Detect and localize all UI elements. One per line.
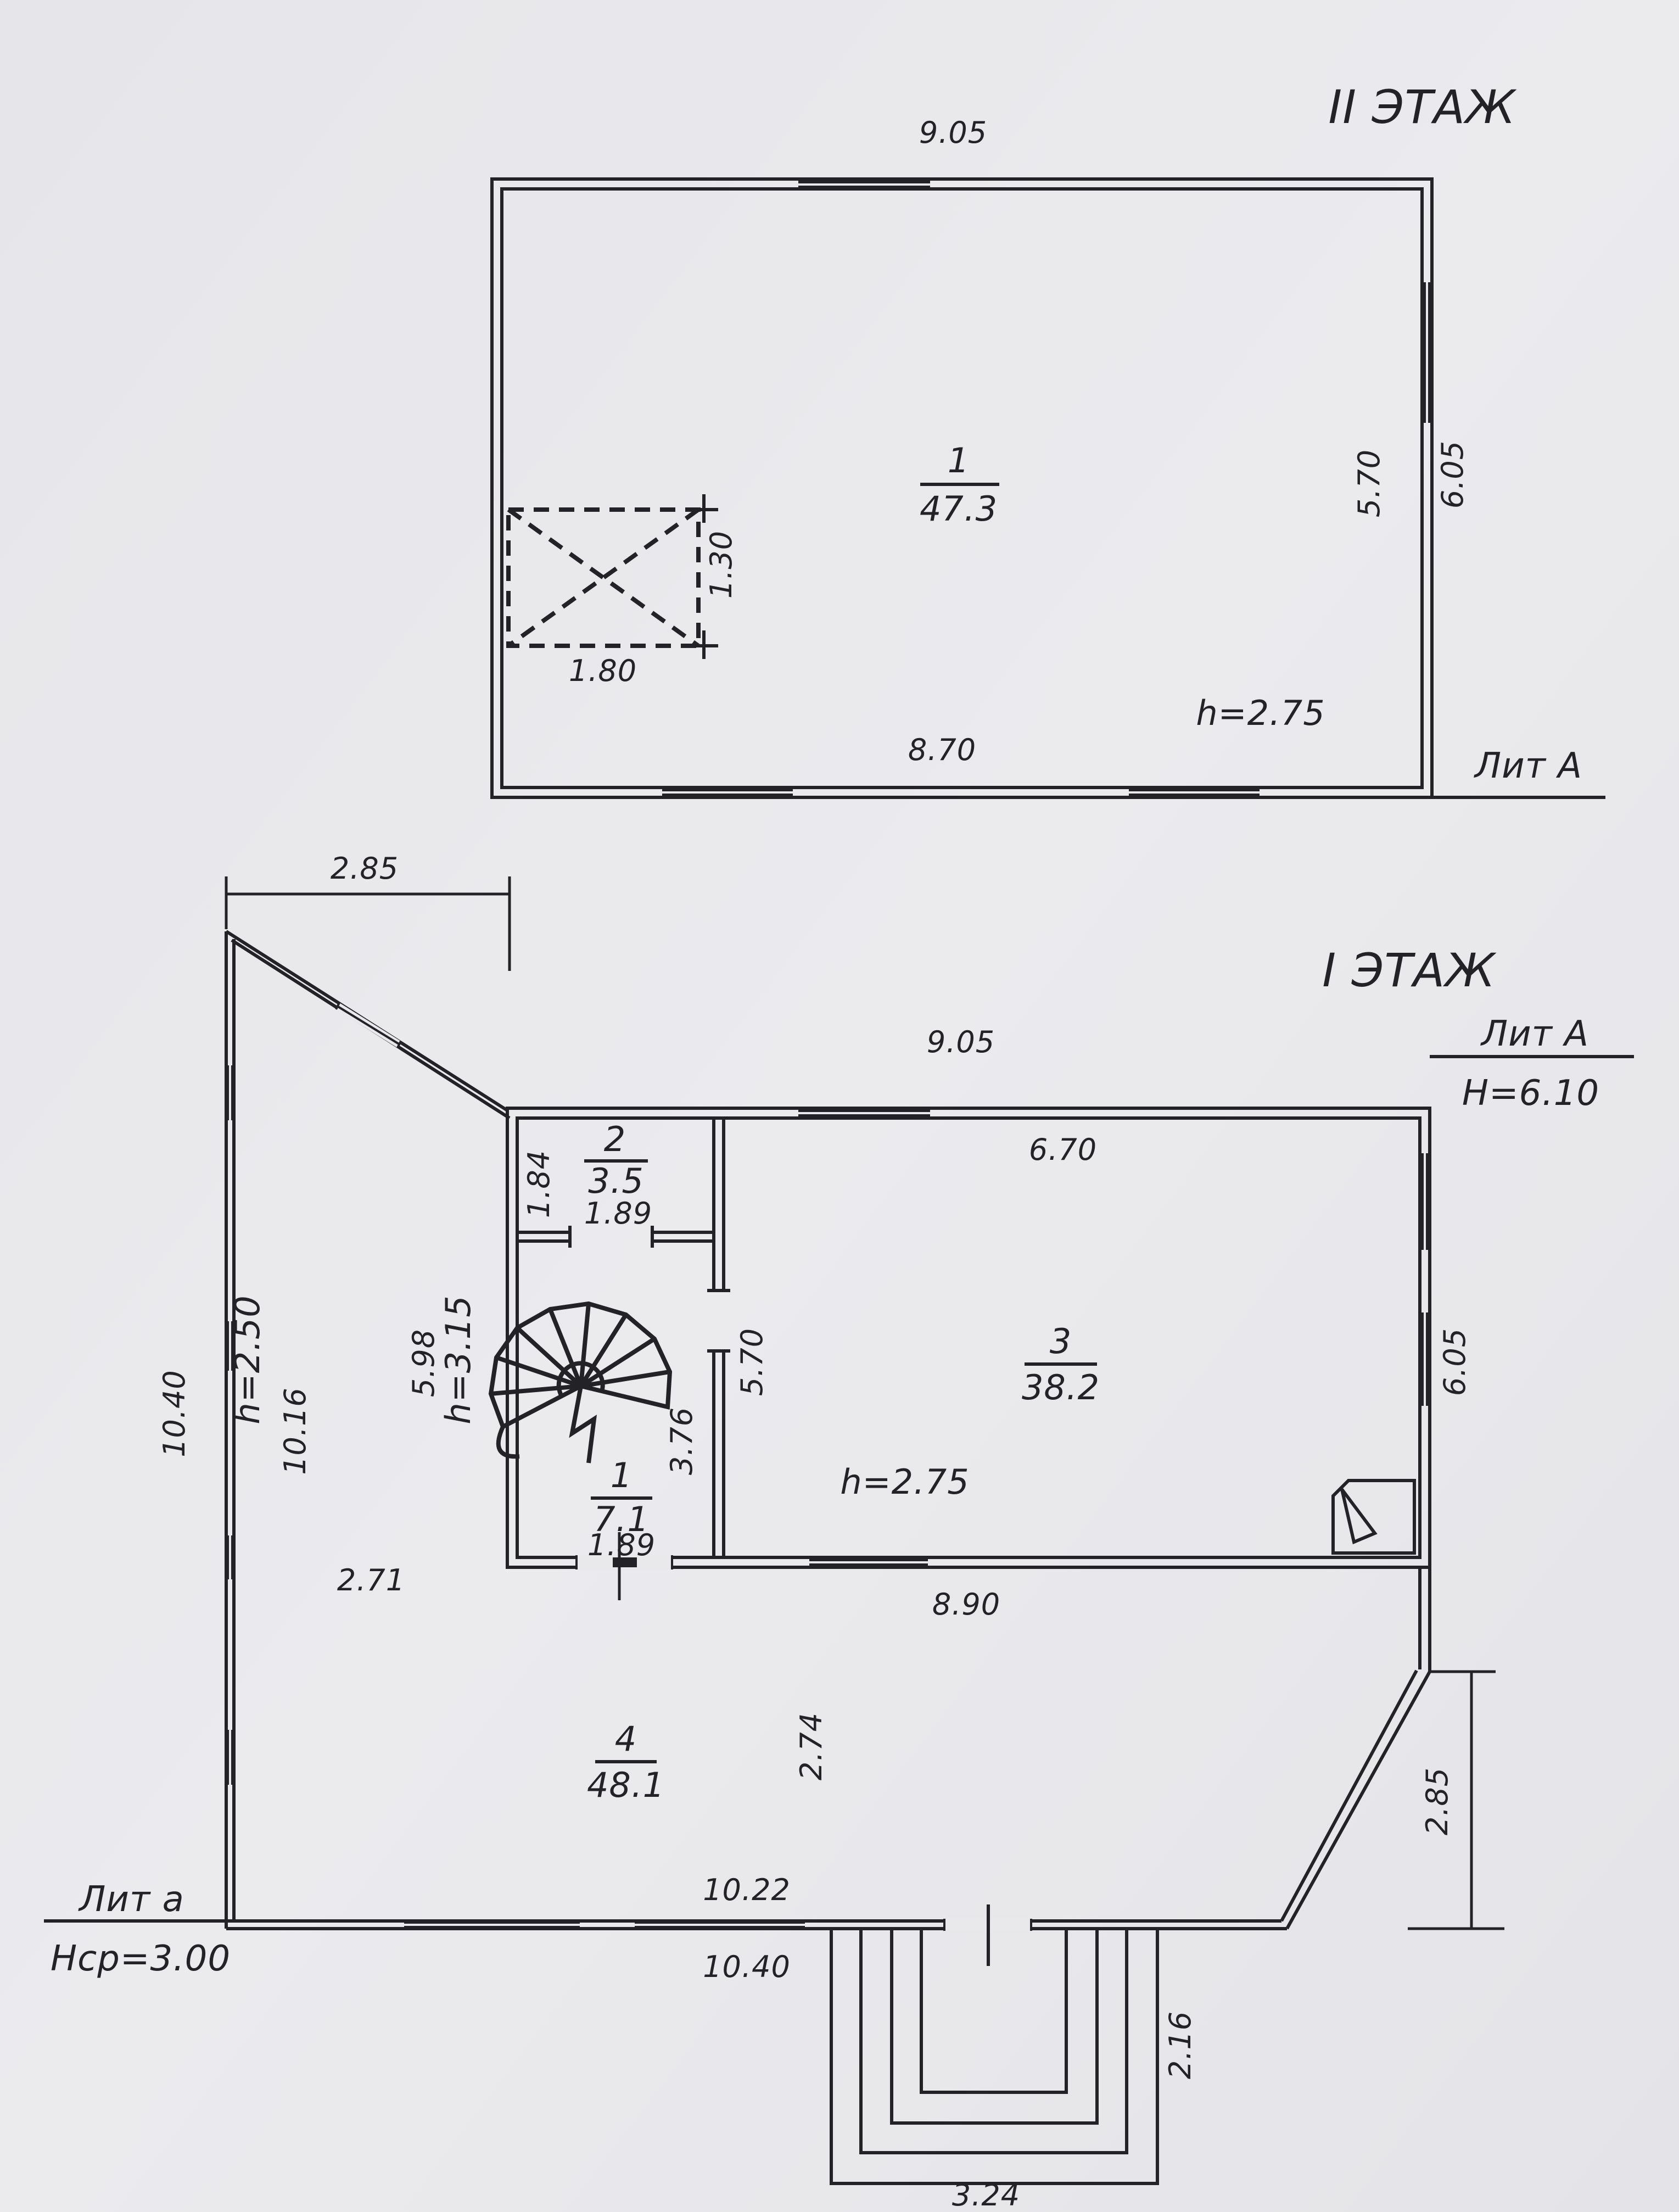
dim-room2-width: 1.89 <box>584 1196 652 1231</box>
dim-stair-wall: 3.76 <box>664 1407 699 1475</box>
dim-roof-offset: 2.85 <box>331 851 399 886</box>
ceiling-height: h=2.75 <box>840 1462 969 1502</box>
floor2-title: II ЭТАЖ <box>1328 80 1517 134</box>
dim-annex-bottom-inner: 10.22 <box>703 1873 791 1907</box>
dim-annex-west-inner: 10.16 <box>278 1387 312 1475</box>
dim-f2-height-inner: 5.70 <box>1352 449 1386 517</box>
room-area: 48.1 <box>587 1765 665 1805</box>
dim-opening-width: 1.80 <box>569 653 637 688</box>
room-number: 2 <box>604 1119 626 1159</box>
dim-annex-width-left: 2.71 <box>337 1563 405 1597</box>
dim-chamfer: 2.85 <box>1420 1767 1454 1835</box>
ceiling-height: h=2.75 <box>1196 693 1325 733</box>
room-number: 4 <box>615 1719 637 1759</box>
dim-annex-west-outer: 10.40 <box>157 1370 192 1457</box>
dim-f2-height-outer: 6.05 <box>1435 440 1470 509</box>
dim-room1-width: 1.89 <box>587 1528 656 1562</box>
building-height: Н=6.10 <box>1462 1073 1599 1114</box>
litera-label: Лит А <box>1474 746 1582 786</box>
room-number: 1 <box>611 1455 633 1495</box>
annex-height-high: h=3.15 <box>438 1295 478 1424</box>
dim-f1-height-outer: 6.05 <box>1437 1328 1472 1396</box>
dim-house-west: 5.98 <box>406 1329 441 1397</box>
litera-label: Лит А <box>1480 1014 1589 1054</box>
dim-bottom-inner: 8.90 <box>932 1587 1000 1622</box>
dim-f2-width-bottom: 8.70 <box>908 733 976 767</box>
annex-litera: Лит а <box>78 1879 184 1920</box>
room-area: 38.2 <box>1022 1367 1100 1407</box>
floor1-title: I ЭТАЖ <box>1322 943 1497 997</box>
room-number: 1 <box>948 440 970 481</box>
annex-height-low: h=2.50 <box>227 1295 267 1424</box>
dim-room3-top: 6.70 <box>1029 1132 1097 1167</box>
room-area: 47.3 <box>920 489 998 529</box>
dim-room2-depth: 1.84 <box>522 1150 556 1218</box>
floor-plan-drawing: II ЭТАЖ 9.05 1 47.3 1.80 1.30 h=2.75 8.7… <box>0 0 1679 2212</box>
dim-f2-width-top: 9.05 <box>919 115 987 150</box>
dim-opening-height: 1.30 <box>704 530 738 599</box>
dim-annex-bottom-outer: 10.40 <box>703 1950 791 1984</box>
dim-room4-depth: 2.74 <box>794 1712 829 1780</box>
room-number: 3 <box>1050 1321 1072 1361</box>
scanned-floorplan-page: II ЭТАЖ 9.05 1 47.3 1.80 1.30 h=2.75 8.7… <box>0 0 1679 2212</box>
dim-room3-side: 5.70 <box>735 1328 769 1396</box>
annex-avg-height: Нср=3.00 <box>51 1939 231 1979</box>
dim-porch-depth: 2.16 <box>1163 2011 1197 2079</box>
dim-porch-width: 3.24 <box>952 2178 1020 2212</box>
room-area: 3.5 <box>588 1161 644 1201</box>
dim-f1-width-top: 9.05 <box>927 1025 995 1059</box>
